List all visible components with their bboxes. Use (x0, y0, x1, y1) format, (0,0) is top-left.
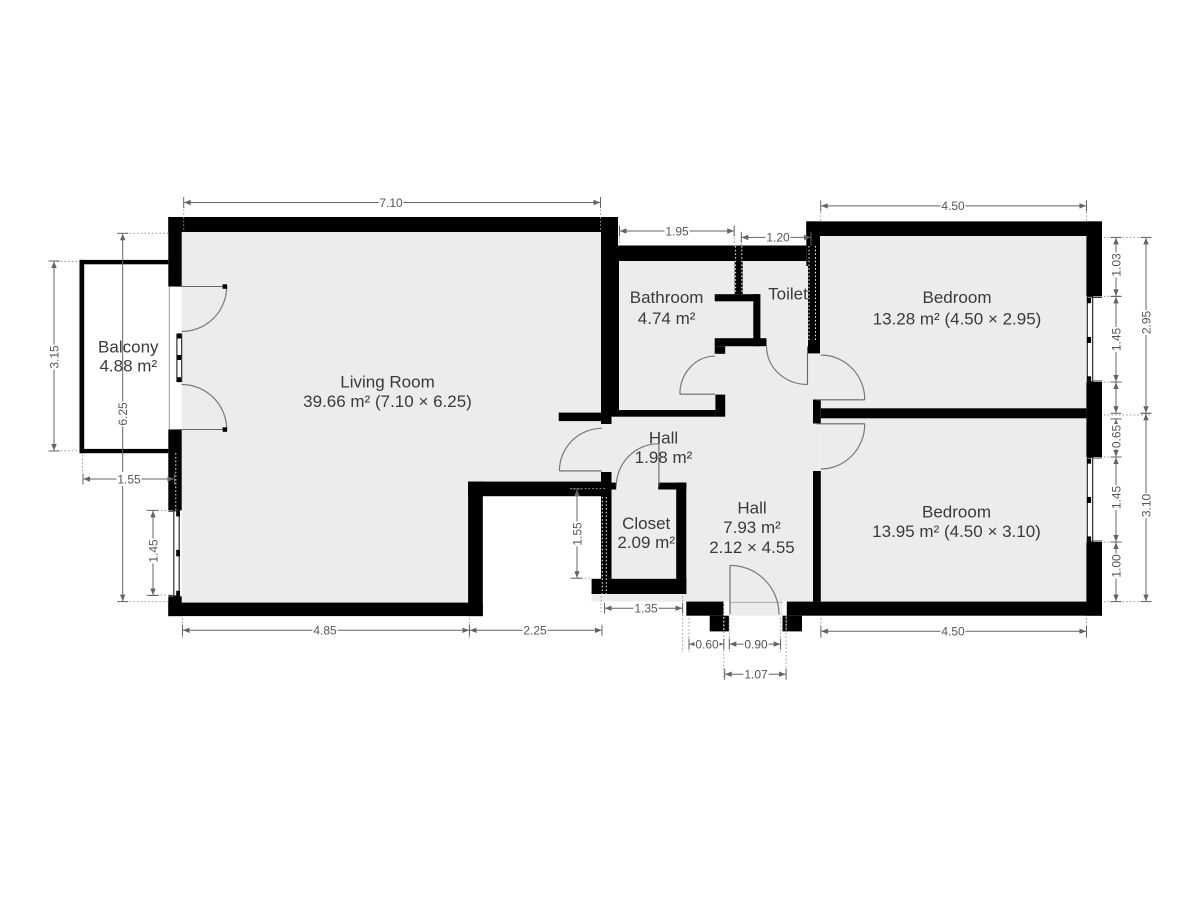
svg-text:4.50: 4.50 (941, 625, 965, 639)
svg-text:39.66 m² (7.10 × 6.25): 39.66 m² (7.10 × 6.25) (303, 392, 472, 411)
svg-text:4.74 m²: 4.74 m² (638, 309, 696, 328)
svg-text:7.93 m²: 7.93 m² (723, 518, 781, 537)
svg-text:1.03: 1.03 (1109, 253, 1123, 277)
svg-text:1.95: 1.95 (665, 224, 689, 238)
svg-text:0.90: 0.90 (744, 637, 768, 651)
svg-text:3.10: 3.10 (1139, 493, 1153, 517)
svg-text:Hall: Hall (649, 429, 678, 448)
svg-text:2.95: 2.95 (1139, 310, 1153, 334)
svg-text:2.12 × 4.55: 2.12 × 4.55 (709, 538, 795, 557)
svg-text:4.50: 4.50 (941, 199, 965, 213)
svg-text:Toilet: Toilet (768, 285, 808, 304)
svg-text:Living Room: Living Room (340, 373, 435, 392)
svg-text:2.25: 2.25 (523, 624, 547, 638)
svg-text:Bedroom: Bedroom (923, 288, 992, 307)
svg-text:3.15: 3.15 (47, 345, 61, 369)
svg-text:Balcony: Balcony (98, 338, 159, 357)
svg-text:1.35: 1.35 (634, 602, 658, 616)
svg-text:Hall: Hall (737, 499, 766, 518)
svg-text:13.95 m² (4.50 × 3.10): 13.95 m² (4.50 × 3.10) (872, 522, 1041, 541)
svg-text:6.25: 6.25 (116, 402, 130, 426)
svg-text:4.88 m²: 4.88 m² (99, 357, 157, 376)
svg-text:7.10: 7.10 (379, 196, 403, 210)
svg-text:1.00: 1.00 (1109, 554, 1123, 578)
svg-text:2.09 m²: 2.09 m² (617, 533, 675, 552)
svg-text:1.55: 1.55 (570, 522, 584, 546)
svg-text:1.55: 1.55 (117, 472, 141, 486)
svg-text:0.60: 0.60 (695, 637, 719, 651)
svg-text:13.28 m² (4.50 × 2.95): 13.28 m² (4.50 × 2.95) (873, 310, 1042, 329)
svg-text:Bathroom: Bathroom (630, 288, 704, 307)
svg-text:1.45: 1.45 (146, 539, 160, 563)
svg-text:1.45: 1.45 (1109, 485, 1123, 509)
svg-text:1.20: 1.20 (766, 231, 790, 245)
svg-text:4.85: 4.85 (313, 624, 337, 638)
svg-text:Closet: Closet (622, 514, 670, 533)
svg-text:1.07: 1.07 (744, 668, 768, 682)
svg-text:1.98 m²: 1.98 m² (635, 448, 693, 467)
svg-text:1.45: 1.45 (1109, 327, 1123, 351)
svg-text:0.65: 0.65 (1109, 424, 1123, 448)
svg-text:Bedroom: Bedroom (922, 503, 991, 522)
